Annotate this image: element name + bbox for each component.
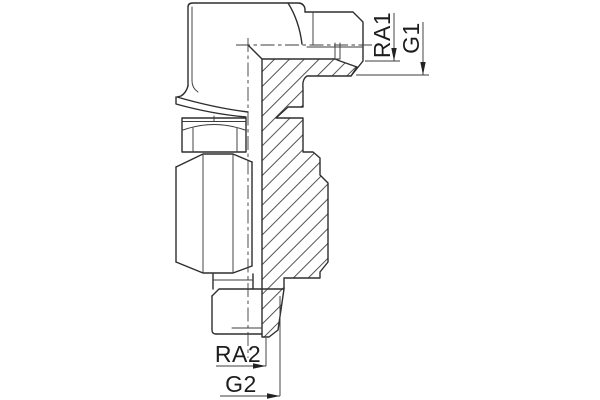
dim-ra1-label: RA1 <box>369 12 395 58</box>
elbow-body-blend-curve <box>288 3 302 44</box>
elbow-body-bottom-flange <box>177 86 248 112</box>
body-inner-left-line <box>192 7 198 92</box>
dim-g2-arrow <box>267 393 280 398</box>
dim-g1-arrow <box>420 62 425 75</box>
stub-left-edge <box>212 296 216 334</box>
locknut-chamfer-arc <box>183 125 245 131</box>
section-cut-region <box>248 45 357 337</box>
section-hatch-area <box>248 45 357 337</box>
dim-ra2-label: RA2 <box>215 341 261 367</box>
dim-g2-label: G2 <box>225 371 257 397</box>
technical-drawing-canvas: RA1 G1 RA2 G2 <box>0 0 600 400</box>
hex-face-lines <box>203 154 233 273</box>
locknut-outline <box>182 118 246 152</box>
elbow-fitting-drawing: RA1 G1 RA2 G2 <box>0 0 600 400</box>
dim-g1-label: G1 <box>398 22 424 54</box>
hex-top-chamfer <box>176 154 252 167</box>
hex-bottom-chamfer <box>176 262 252 273</box>
